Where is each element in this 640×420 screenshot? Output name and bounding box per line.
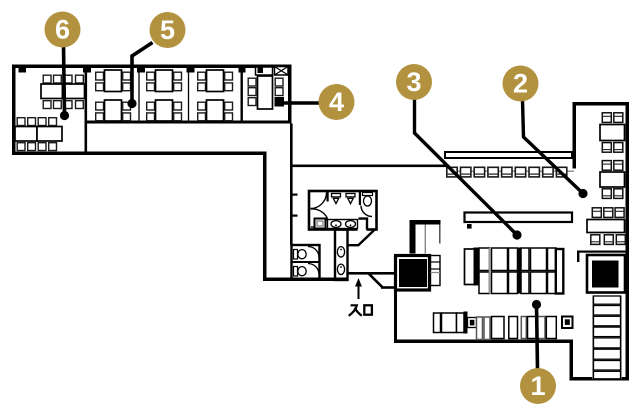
svg-text:6: 6 [55, 15, 70, 45]
svg-text:1: 1 [530, 371, 545, 401]
svg-text:4: 4 [329, 87, 344, 117]
svg-text:5: 5 [160, 15, 175, 45]
svg-text:3: 3 [406, 67, 421, 97]
svg-text:2: 2 [513, 69, 528, 99]
